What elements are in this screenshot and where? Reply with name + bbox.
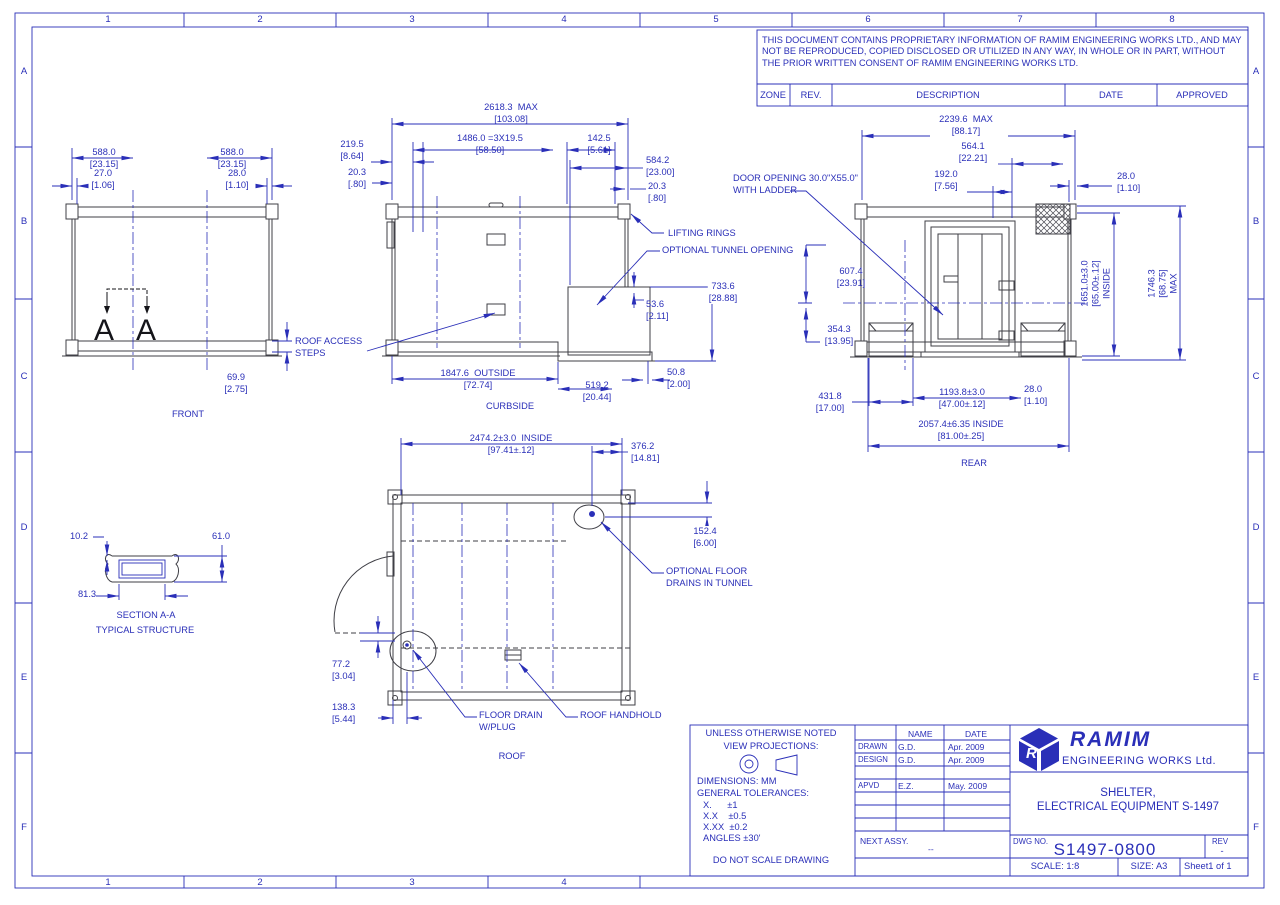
header-name: NAME bbox=[908, 729, 933, 739]
roof-view-label: ROOF bbox=[499, 751, 526, 763]
drawing-title-line2: ELECTRICAL EQUIPMENT S-1497 bbox=[1037, 800, 1219, 814]
zone-row-left-a: A bbox=[16, 66, 32, 78]
dim-rear-192: 192.0[7.56] bbox=[934, 169, 957, 192]
dim-rear-28-bottom: 28.0[1.10] bbox=[1024, 384, 1047, 407]
zone-row-right-d: D bbox=[1248, 522, 1264, 534]
design-name: G.D. bbox=[898, 755, 915, 765]
dim-curbside-5192: 519.2[20.44] bbox=[583, 380, 611, 403]
callout-door-opening: DOOR OPENING 30.0"X55.0"WITH LADDER bbox=[733, 173, 858, 196]
zone-col-bottom-3: 3 bbox=[404, 877, 420, 889]
design-label: DESIGN bbox=[858, 755, 888, 765]
dim-roof-3762: 376.2[14.81] bbox=[631, 441, 659, 464]
dim-curbside-203-right: 20.3[.80] bbox=[648, 181, 666, 204]
zone-col-top-4: 4 bbox=[556, 14, 572, 26]
zone-col-top-3: 3 bbox=[404, 14, 420, 26]
projection-symbol-icons bbox=[740, 755, 797, 775]
rev-header-zone: ZONE bbox=[760, 90, 786, 102]
company-name: RAMIM bbox=[1070, 729, 1151, 751]
rev-value: - bbox=[1220, 846, 1223, 858]
dim-section-610: 61.0 bbox=[212, 531, 230, 543]
dim-curbside-203-left: 20.3[.80] bbox=[348, 167, 366, 190]
drawn-name: G.D. bbox=[898, 742, 915, 752]
notes-tol-xxx: X.XX ±0.2 bbox=[703, 822, 747, 834]
zone-row-left-b: B bbox=[16, 216, 32, 228]
dim-rear-2239: 2239.6 MAX[88.17] bbox=[939, 114, 993, 137]
sheet-value: Sheet1 of 1 bbox=[1184, 861, 1232, 873]
callout-lifting-rings: LIFTING RINGS bbox=[668, 228, 736, 240]
dwg-no-label: DWG NO. bbox=[1013, 837, 1048, 847]
dim-curbside-1486: 1486.0 =3X19.5[58.50] bbox=[457, 133, 523, 156]
dim-front-588-left: 588.0[23.15] bbox=[90, 147, 118, 170]
dim-curbside-536: 53.6[2.11] bbox=[646, 299, 669, 322]
callout-floor-drains-tunnel: OPTIONAL FLOORDRAINS IN TUNNEL bbox=[666, 566, 753, 589]
ramim-logo-icon bbox=[1019, 728, 1059, 771]
zone-row-right-f: F bbox=[1248, 822, 1264, 834]
dim-rear-3543: 354.3[13.95] bbox=[825, 324, 853, 347]
dim-front-588-right: 588.0[23.15] bbox=[218, 147, 246, 170]
zone-row-right-a: A bbox=[1248, 66, 1264, 78]
zone-row-left-f: F bbox=[16, 822, 32, 834]
next-assy-label: NEXT ASSY. bbox=[860, 836, 908, 846]
notes-footer: DO NOT SCALE DRAWING bbox=[713, 855, 829, 867]
logo-letter: R bbox=[1026, 746, 1037, 761]
dim-rear-4318: 431.8[17.00] bbox=[816, 391, 844, 414]
section-aa-label: SECTION A-A bbox=[117, 610, 176, 622]
notes-heading: UNLESS OTHERWISE NOTED bbox=[705, 728, 836, 740]
roof-view-geometry bbox=[334, 438, 712, 724]
zone-row-left-d: D bbox=[16, 522, 32, 534]
dim-rear-28-top: 28.0[1.10] bbox=[1117, 171, 1140, 194]
notes-dimensions: DIMENSIONS: MM bbox=[697, 776, 777, 788]
zone-col-top-6: 6 bbox=[860, 14, 876, 26]
scale-value: SCALE: 1:8 bbox=[1031, 861, 1080, 873]
dim-roof-1383: 138.3[5.44] bbox=[332, 702, 355, 725]
dim-curbside-1847: 1847.6 OUTSIDE[72.74] bbox=[441, 368, 516, 391]
dim-rear-1193: 1193.8±3.0[47.00±.12] bbox=[939, 387, 985, 410]
dwg-no-value: S1497-0800 bbox=[1054, 841, 1157, 859]
callout-floor-drain-plug: FLOOR DRAINW/PLUG bbox=[479, 710, 543, 733]
notes-tol-x: X. ±1 bbox=[703, 800, 738, 812]
section-letter-right: A bbox=[136, 316, 156, 346]
zone-col-bottom-1: 1 bbox=[100, 877, 116, 889]
apvd-name: E.Z. bbox=[898, 781, 914, 791]
proprietary-note: THIS DOCUMENT CONTAINS PROPRIETARY INFOR… bbox=[762, 35, 1242, 69]
dim-curbside-1425: 142.5[5.61] bbox=[587, 133, 610, 156]
callout-roof-handhold: ROOF HANDHOLD bbox=[580, 710, 662, 722]
callout-roof-access-steps: ROOF ACCESSSTEPS bbox=[295, 336, 362, 359]
dim-rear-5641: 564.1[22.21] bbox=[959, 141, 987, 164]
apvd-date: May. 2009 bbox=[948, 781, 987, 791]
drawing-sheet: 1 2 3 4 5 6 7 8 1 2 3 4 A B C D E F A B … bbox=[0, 0, 1280, 905]
dim-curbside-7336: 733.6[28.88] bbox=[708, 281, 738, 304]
next-assy-value: -- bbox=[928, 844, 934, 854]
dim-roof-1524: 152.4[6.00] bbox=[692, 526, 717, 549]
dim-rear-6074: 607.4[23.91] bbox=[837, 266, 865, 289]
notes-projections-label: VIEW PROJECTIONS: bbox=[723, 741, 818, 753]
apvd-label: APVD bbox=[858, 781, 879, 791]
zone-row-left-c: C bbox=[16, 371, 32, 383]
size-value: SIZE: A3 bbox=[1131, 861, 1168, 873]
curbside-view-label: CURBSIDE bbox=[486, 401, 534, 413]
notes-tol-angles: ANGLES ±30' bbox=[703, 833, 761, 845]
company-subtitle: ENGINEERING WORKS Ltd. bbox=[1062, 755, 1216, 767]
dim-curbside-5842: 584.2[23.00] bbox=[646, 155, 674, 178]
dim-curbside-2618: 2618.3 MAX[103.08] bbox=[484, 102, 538, 125]
dim-roof-2474: 2474.2±3.0 INSIDE[97.41±.12] bbox=[470, 433, 553, 456]
notes-tolerances-title: GENERAL TOLERANCES: bbox=[697, 788, 809, 800]
dim-section-813: 81.3 bbox=[78, 589, 96, 601]
dim-roof-772: 77.2[3.04] bbox=[332, 659, 355, 682]
front-view-geometry bbox=[52, 148, 292, 372]
zone-row-right-e: E bbox=[1248, 672, 1264, 684]
rev-header-date: DATE bbox=[1099, 90, 1123, 102]
dim-rear-1746: 1746.3[68.75]MAX bbox=[1147, 224, 1180, 344]
zone-col-bottom-4: 4 bbox=[556, 877, 572, 889]
dim-rear-2057: 2057.4±6.35 INSIDE[81.00±.25] bbox=[918, 419, 1003, 442]
zone-row-right-b: B bbox=[1248, 216, 1264, 228]
drawn-date: Apr. 2009 bbox=[948, 742, 984, 752]
zone-col-top-7: 7 bbox=[1012, 14, 1028, 26]
rev-header-description: DESCRIPTION bbox=[916, 90, 980, 102]
dim-front-699: 69.9[2.75] bbox=[224, 372, 247, 395]
callout-tunnel-opening: OPTIONAL TUNNEL OPENING bbox=[662, 245, 793, 257]
dim-curbside-2195: 219.5[8.64] bbox=[340, 139, 363, 162]
typical-structure-label: TYPICAL STRUCTURE bbox=[96, 625, 194, 637]
dim-front-28: 28.0[1.10] bbox=[225, 168, 248, 191]
zone-row-right-c: C bbox=[1248, 371, 1264, 383]
dim-section-102: 10.2 bbox=[70, 531, 88, 543]
dim-curbside-508: 50.8[2.00] bbox=[667, 367, 690, 390]
dim-front-27: 27.0[1.06] bbox=[91, 168, 114, 191]
rev-header-rev: REV. bbox=[801, 90, 822, 102]
rear-view-label: REAR bbox=[961, 458, 987, 470]
zone-row-left-e: E bbox=[16, 672, 32, 684]
drawn-label: DRAWN bbox=[858, 742, 887, 752]
section-cut-marks bbox=[104, 289, 150, 314]
dim-rear-1651: 1651.0±3.0[65.00±.12]INSIDE bbox=[1080, 224, 1113, 344]
drawing-title-line1: SHELTER, bbox=[1100, 786, 1155, 800]
zone-col-bottom-2: 2 bbox=[252, 877, 268, 889]
zone-col-top-5: 5 bbox=[708, 14, 724, 26]
notes-tol-xx: X.X ±0.5 bbox=[703, 811, 746, 823]
front-view-label: FRONT bbox=[172, 409, 204, 421]
zone-col-top-1: 1 bbox=[100, 14, 116, 26]
section-letter-left: A bbox=[94, 316, 114, 346]
rev-header-approved: APPROVED bbox=[1176, 90, 1228, 102]
design-date: Apr. 2009 bbox=[948, 755, 984, 765]
section-aa-geometry bbox=[93, 537, 227, 600]
zone-col-top-8: 8 bbox=[1164, 14, 1180, 26]
header-date: DATE bbox=[965, 729, 987, 739]
zone-col-top-2: 2 bbox=[252, 14, 268, 26]
